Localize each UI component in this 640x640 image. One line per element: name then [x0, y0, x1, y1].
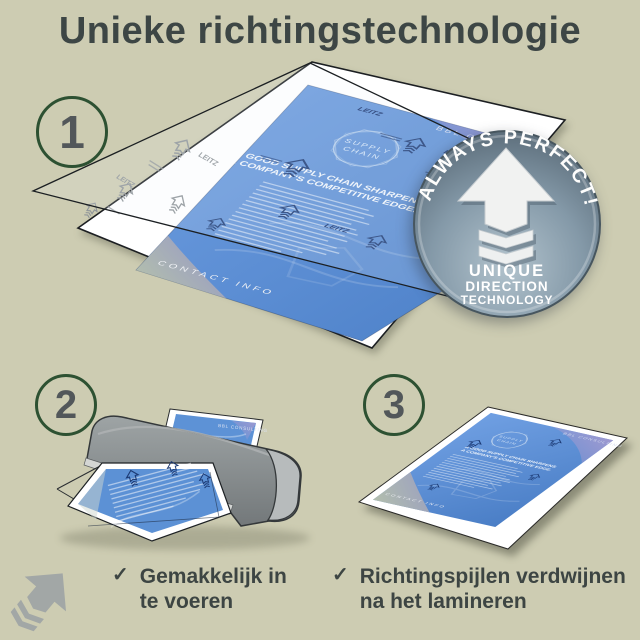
step-2-number: 2: [55, 383, 77, 428]
always-perfect-badge: ALWAYS PERFECT! UNIQUE DIRECTION TECHNOL…: [414, 126, 602, 317]
caption-easy-feed: ✓ Gemakkelijk in te voeren: [112, 564, 287, 614]
step-1-number: 1: [59, 105, 85, 159]
chevron-arrow-icon: [0, 556, 83, 640]
product-instruction-graphic: Unieke richtingstechnologie 1 2 3: [0, 0, 640, 640]
caption-text: Gemakkelijk in te voeren: [140, 564, 287, 614]
checkmark-icon: ✓: [112, 564, 129, 587]
step-3-number: 3: [383, 383, 405, 428]
caption-arrows-disappear: ✓ Richtingspijlen verdwijnen na het lami…: [332, 564, 626, 614]
page-title: Unieke richtingstechnologie: [0, 10, 640, 53]
step-1-marker: 1: [36, 96, 108, 168]
caption-line: te voeren: [140, 589, 287, 614]
caption-line: Richtingspijlen verdwijnen: [360, 564, 626, 589]
caption-line: Gemakkelijk in: [140, 564, 287, 589]
illustration-canvas: LEITZ LEITZ: [0, 0, 640, 640]
step-2-marker: 2: [35, 374, 97, 436]
caption-line: na het lamineren: [360, 589, 626, 614]
badge-line-technology: TECHNOLOGY: [461, 293, 554, 307]
badge-line-direction: DIRECTION: [465, 279, 548, 294]
checkmark-icon: ✓: [332, 564, 349, 587]
step-3-marker: 3: [363, 374, 425, 436]
caption-text: Richtingspijlen verdwijnen na het lamine…: [360, 564, 626, 614]
badge-line-unique: UNIQUE: [469, 262, 545, 280]
